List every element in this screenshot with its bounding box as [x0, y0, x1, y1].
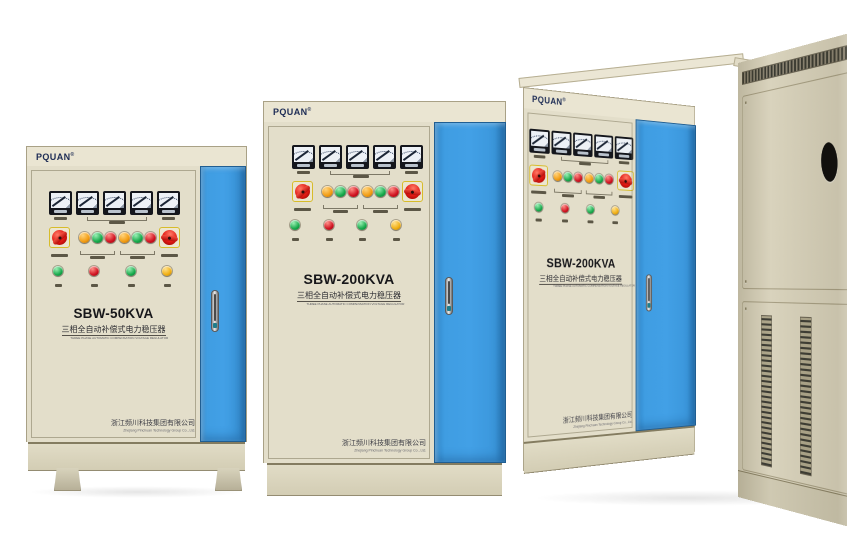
label-chip	[536, 218, 542, 221]
label-chip	[294, 208, 311, 211]
label-chip	[619, 195, 633, 199]
product-photo-canvas: { "brand": { "logo": "PQUAN", "reg": "®"…	[0, 0, 847, 525]
control-door: SBW-50KVA 三相全自动补偿式电力稳压器 THREE PHASE AUTO…	[27, 166, 200, 442]
cabinet-foot	[54, 468, 81, 491]
label-chip	[55, 284, 62, 287]
analog-meter-icon	[319, 145, 342, 169]
door-handle	[211, 290, 219, 332]
indicator-light-green	[92, 232, 103, 243]
indicator-light-green	[375, 186, 386, 197]
analog-meter-icon	[573, 132, 592, 157]
status-light-green	[587, 205, 595, 214]
status-light-green	[290, 220, 300, 230]
bracket-line	[80, 251, 115, 255]
status-light-green	[53, 266, 63, 276]
indicator-light-red	[605, 174, 613, 184]
label-chip	[292, 238, 299, 241]
label-chip	[333, 210, 348, 213]
analog-meter-icon	[76, 191, 99, 215]
analog-meter-icon	[400, 145, 423, 169]
analog-meter-icon	[130, 191, 153, 215]
control-door: SBW-200KVA 三相全自动补偿式电力稳压器 THREE PHASE AUT…	[264, 122, 434, 463]
status-light-green	[535, 203, 543, 212]
rotary-knob	[617, 170, 634, 191]
status-light-green	[126, 266, 136, 276]
cabinet-front-panel: PQUAN®	[263, 101, 506, 463]
brand-logo: PQUAN®	[532, 94, 566, 107]
label-chip	[579, 162, 591, 166]
blue-door	[636, 119, 696, 431]
indicator-light-green	[132, 232, 143, 243]
analog-meter-icon	[346, 145, 369, 169]
analog-meter-icon	[103, 191, 126, 215]
label-chip	[404, 208, 421, 211]
bracket-line	[554, 189, 582, 194]
indicator-light-orange	[79, 232, 90, 243]
analog-meter-icon	[292, 145, 315, 169]
analog-meter-icon	[373, 145, 396, 169]
control-door: SBW-200KVA 三相全自动补偿式电力稳压器 THREE PHASE AUT…	[524, 108, 636, 442]
label-chip	[164, 284, 171, 287]
bracket-line	[323, 205, 358, 209]
label-chip	[353, 175, 369, 178]
label-chip	[297, 171, 310, 174]
bracket-line	[586, 190, 612, 195]
rotary-knob	[49, 227, 70, 248]
model-label: SBW-200KVA	[264, 271, 434, 287]
label-chip	[588, 220, 594, 223]
cabinet-foot	[215, 468, 242, 491]
status-light-yellow	[612, 206, 619, 215]
label-chip	[161, 254, 178, 257]
analog-meter-icon	[615, 136, 633, 160]
label-chip	[619, 161, 629, 165]
indicator-light-red	[574, 172, 582, 182]
header-strip: PQUAN®	[264, 102, 505, 123]
label-chip	[593, 196, 605, 199]
status-light-yellow	[162, 266, 172, 276]
label-chip	[405, 171, 418, 174]
bracket-line	[120, 251, 155, 255]
analog-meter-icon	[594, 134, 613, 158]
blue-door	[434, 122, 506, 463]
label-chip	[612, 221, 618, 224]
blue-door	[200, 166, 246, 442]
indicator-light-orange	[119, 232, 130, 243]
indicator-light-orange	[322, 186, 333, 197]
label-chip	[531, 190, 546, 194]
cabinet-top-edge	[518, 53, 744, 88]
label-chip	[130, 256, 145, 259]
subtitle-en: THREE PHASE AUTOMATIC COMPENSATION VOLTA…	[70, 337, 157, 340]
label-chip	[51, 254, 68, 257]
subtitle-cn: 三相全自动补偿式电力稳压器	[27, 324, 200, 335]
company-label: 浙江频川科技集团有限公司 Zhejiang Pinchuan Technolog…	[302, 440, 426, 456]
label-chip	[54, 217, 67, 220]
subtitle-cn: 三相全自动补偿式电力稳压器	[264, 290, 434, 301]
status-light-yellow	[391, 220, 401, 230]
label-chip	[162, 217, 175, 220]
rotary-knob	[529, 164, 548, 186]
model-label: SBW-200KVA	[524, 256, 636, 271]
cabinet-right: PQUAN®	[523, 58, 847, 523]
indicator-light-green	[335, 186, 346, 197]
status-light-red	[89, 266, 99, 276]
label-chip	[393, 238, 400, 241]
analog-meter-icon	[529, 129, 549, 154]
brand-logo: PQUAN®	[36, 152, 75, 162]
label-chip	[373, 210, 388, 213]
label-chip	[91, 284, 98, 287]
label-chip	[562, 194, 574, 198]
indicator-light-orange	[553, 171, 562, 181]
indicator-light-green	[564, 172, 573, 182]
subtitle-en: THREE PHASE AUTOMATIC COMPENSATION VOLTA…	[307, 303, 392, 306]
door-handle	[445, 277, 453, 315]
header-strip: PQUAN®	[27, 147, 246, 167]
label-chip	[562, 219, 568, 222]
status-light-red	[561, 204, 569, 213]
subtitle-cn: 三相全自动补偿式电力稳压器	[524, 273, 636, 284]
cabinet-side-panel	[738, 24, 847, 536]
status-light-red	[324, 220, 334, 230]
base-plinth	[267, 463, 502, 496]
rotary-knob	[402, 181, 423, 202]
company-label: 浙江频川科技集团有限公司 Zhejiang Pinchuan Technolog…	[71, 420, 195, 436]
cabinet-middle: PQUAN®	[263, 101, 506, 495]
rotary-knob	[292, 181, 313, 202]
label-chip	[109, 221, 125, 224]
label-chip	[534, 155, 546, 159]
analog-meter-icon	[49, 191, 72, 215]
indicator-light-red	[348, 186, 359, 197]
bracket-line	[363, 205, 398, 209]
door-handle	[646, 274, 652, 311]
cabinet-front-panel: PQUAN®	[523, 87, 695, 471]
indicator-light-red	[145, 232, 156, 243]
indicator-light-red	[105, 232, 116, 243]
model-label: SBW-50KVA	[27, 306, 200, 321]
label-chip	[128, 284, 135, 287]
side-shading	[738, 24, 847, 536]
analog-meter-icon	[157, 191, 180, 215]
label-chip	[359, 238, 366, 241]
base-plinth	[28, 442, 245, 471]
indicator-light-red	[388, 186, 399, 197]
brand-logo: PQUAN®	[273, 107, 312, 117]
label-chip	[326, 238, 333, 241]
rotary-knob	[159, 227, 180, 248]
subtitle-en: THREE PHASE AUTOMATIC COMPENSATION VOLTA…	[553, 285, 609, 288]
cabinet-front-panel: PQUAN®	[26, 146, 247, 442]
label-chip	[90, 256, 105, 259]
status-light-green	[357, 220, 367, 230]
analog-meter-icon	[552, 131, 572, 156]
indicator-light-green	[595, 174, 603, 184]
indicator-light-orange	[585, 173, 593, 183]
cabinet-left: PQUAN®	[26, 146, 247, 498]
indicator-light-orange	[362, 186, 373, 197]
